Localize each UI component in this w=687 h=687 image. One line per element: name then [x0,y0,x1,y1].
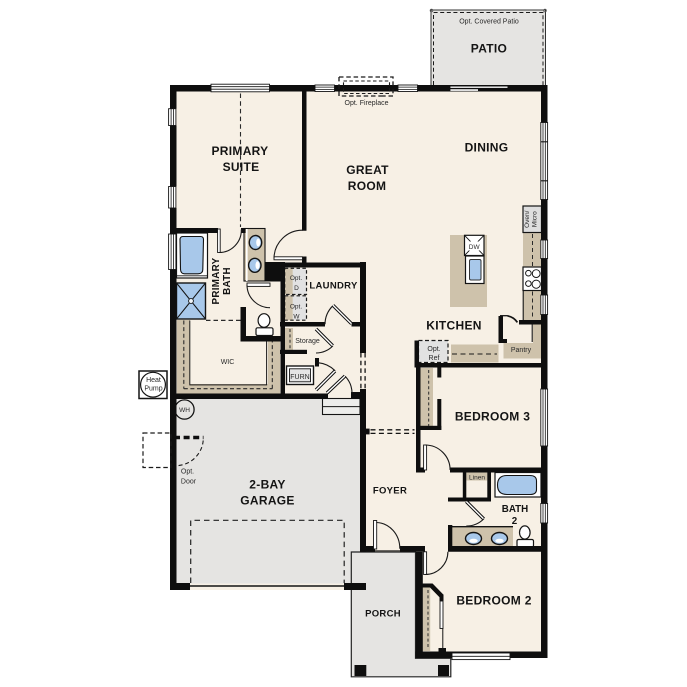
svg-text:BATH: BATH [222,267,233,295]
svg-text:WIC: WIC [221,359,235,366]
svg-text:Micro: Micro [532,211,539,227]
svg-text:BATH: BATH [502,504,528,515]
svg-text:SUITE: SUITE [223,160,260,174]
svg-text:W: W [293,314,300,321]
svg-text:KITCHEN: KITCHEN [426,319,481,333]
svg-text:Pantry: Pantry [511,347,532,354]
svg-text:PATIO: PATIO [471,42,507,56]
svg-text:DW: DW [469,244,481,251]
svg-text:2: 2 [512,516,518,527]
svg-text:PORCH: PORCH [365,609,401,620]
svg-text:PRIMARY: PRIMARY [211,257,222,304]
svg-text:Opt.: Opt. [290,275,302,282]
svg-text:GARAGE: GARAGE [240,494,294,508]
svg-text:Linen: Linen [469,474,485,481]
svg-text:Oven/: Oven/ [524,210,531,228]
svg-text:FURN: FURN [290,374,309,381]
svg-text:FOYER: FOYER [373,486,407,497]
svg-text:Opt.: Opt. [290,304,302,311]
svg-text:DINING: DINING [465,141,509,155]
svg-text:WH: WH [179,407,190,414]
svg-text:Ref: Ref [429,355,440,362]
svg-text:LAUNDRY: LAUNDRY [309,281,358,292]
svg-text:GREAT: GREAT [346,163,389,177]
svg-text:Heat: Heat [146,377,161,384]
svg-text:Opt. Fireplace: Opt. Fireplace [345,100,389,107]
svg-text:BEDROOM 2: BEDROOM 2 [456,594,531,608]
svg-text:Opt.: Opt. [181,469,194,476]
svg-text:Door: Door [181,479,197,486]
svg-text:D: D [294,285,299,292]
svg-text:PRIMARY: PRIMARY [212,144,269,158]
svg-text:BEDROOM 3: BEDROOM 3 [455,410,530,424]
svg-text:Opt. Covered Patio: Opt. Covered Patio [459,19,519,26]
svg-text:Pump: Pump [144,386,162,393]
svg-text:ROOM: ROOM [348,179,387,193]
svg-text:Storage: Storage [295,338,320,345]
svg-text:2-BAY: 2-BAY [249,478,285,492]
svg-text:Opt.: Opt. [427,346,440,353]
